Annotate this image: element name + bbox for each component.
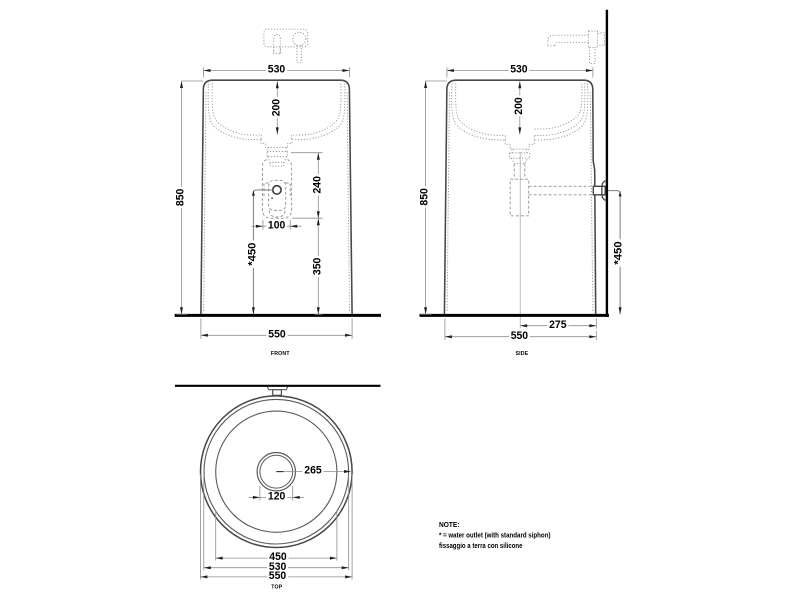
svg-text:fissaggio a terra con silicone: fissaggio a terra con silicone [439,541,523,550]
svg-text:TOP: TOP [271,585,283,591]
svg-text:550: 550 [269,570,286,582]
svg-text:200: 200 [270,99,282,116]
svg-text:200: 200 [513,97,525,114]
svg-text:265: 265 [304,465,321,477]
svg-text:550: 550 [268,328,285,340]
svg-text:530: 530 [510,64,527,76]
svg-text:350: 350 [311,258,323,275]
svg-text:FRONT: FRONT [271,351,290,357]
svg-text:100: 100 [268,219,285,231]
svg-text:550: 550 [511,330,528,342]
svg-text:240: 240 [311,176,323,193]
svg-text:*450: *450 [613,241,625,264]
svg-text:120: 120 [268,491,285,503]
svg-text:850: 850 [175,189,187,206]
svg-text:* = water outlet (with standar: * = water outlet (with standard siphon) [439,531,551,540]
svg-text:*450: *450 [247,243,259,266]
svg-text:850: 850 [419,188,431,205]
svg-text:275: 275 [549,319,566,331]
svg-text:NOTE:: NOTE: [439,520,460,529]
svg-text:530: 530 [268,64,285,76]
svg-text:SIDE: SIDE [515,351,528,357]
